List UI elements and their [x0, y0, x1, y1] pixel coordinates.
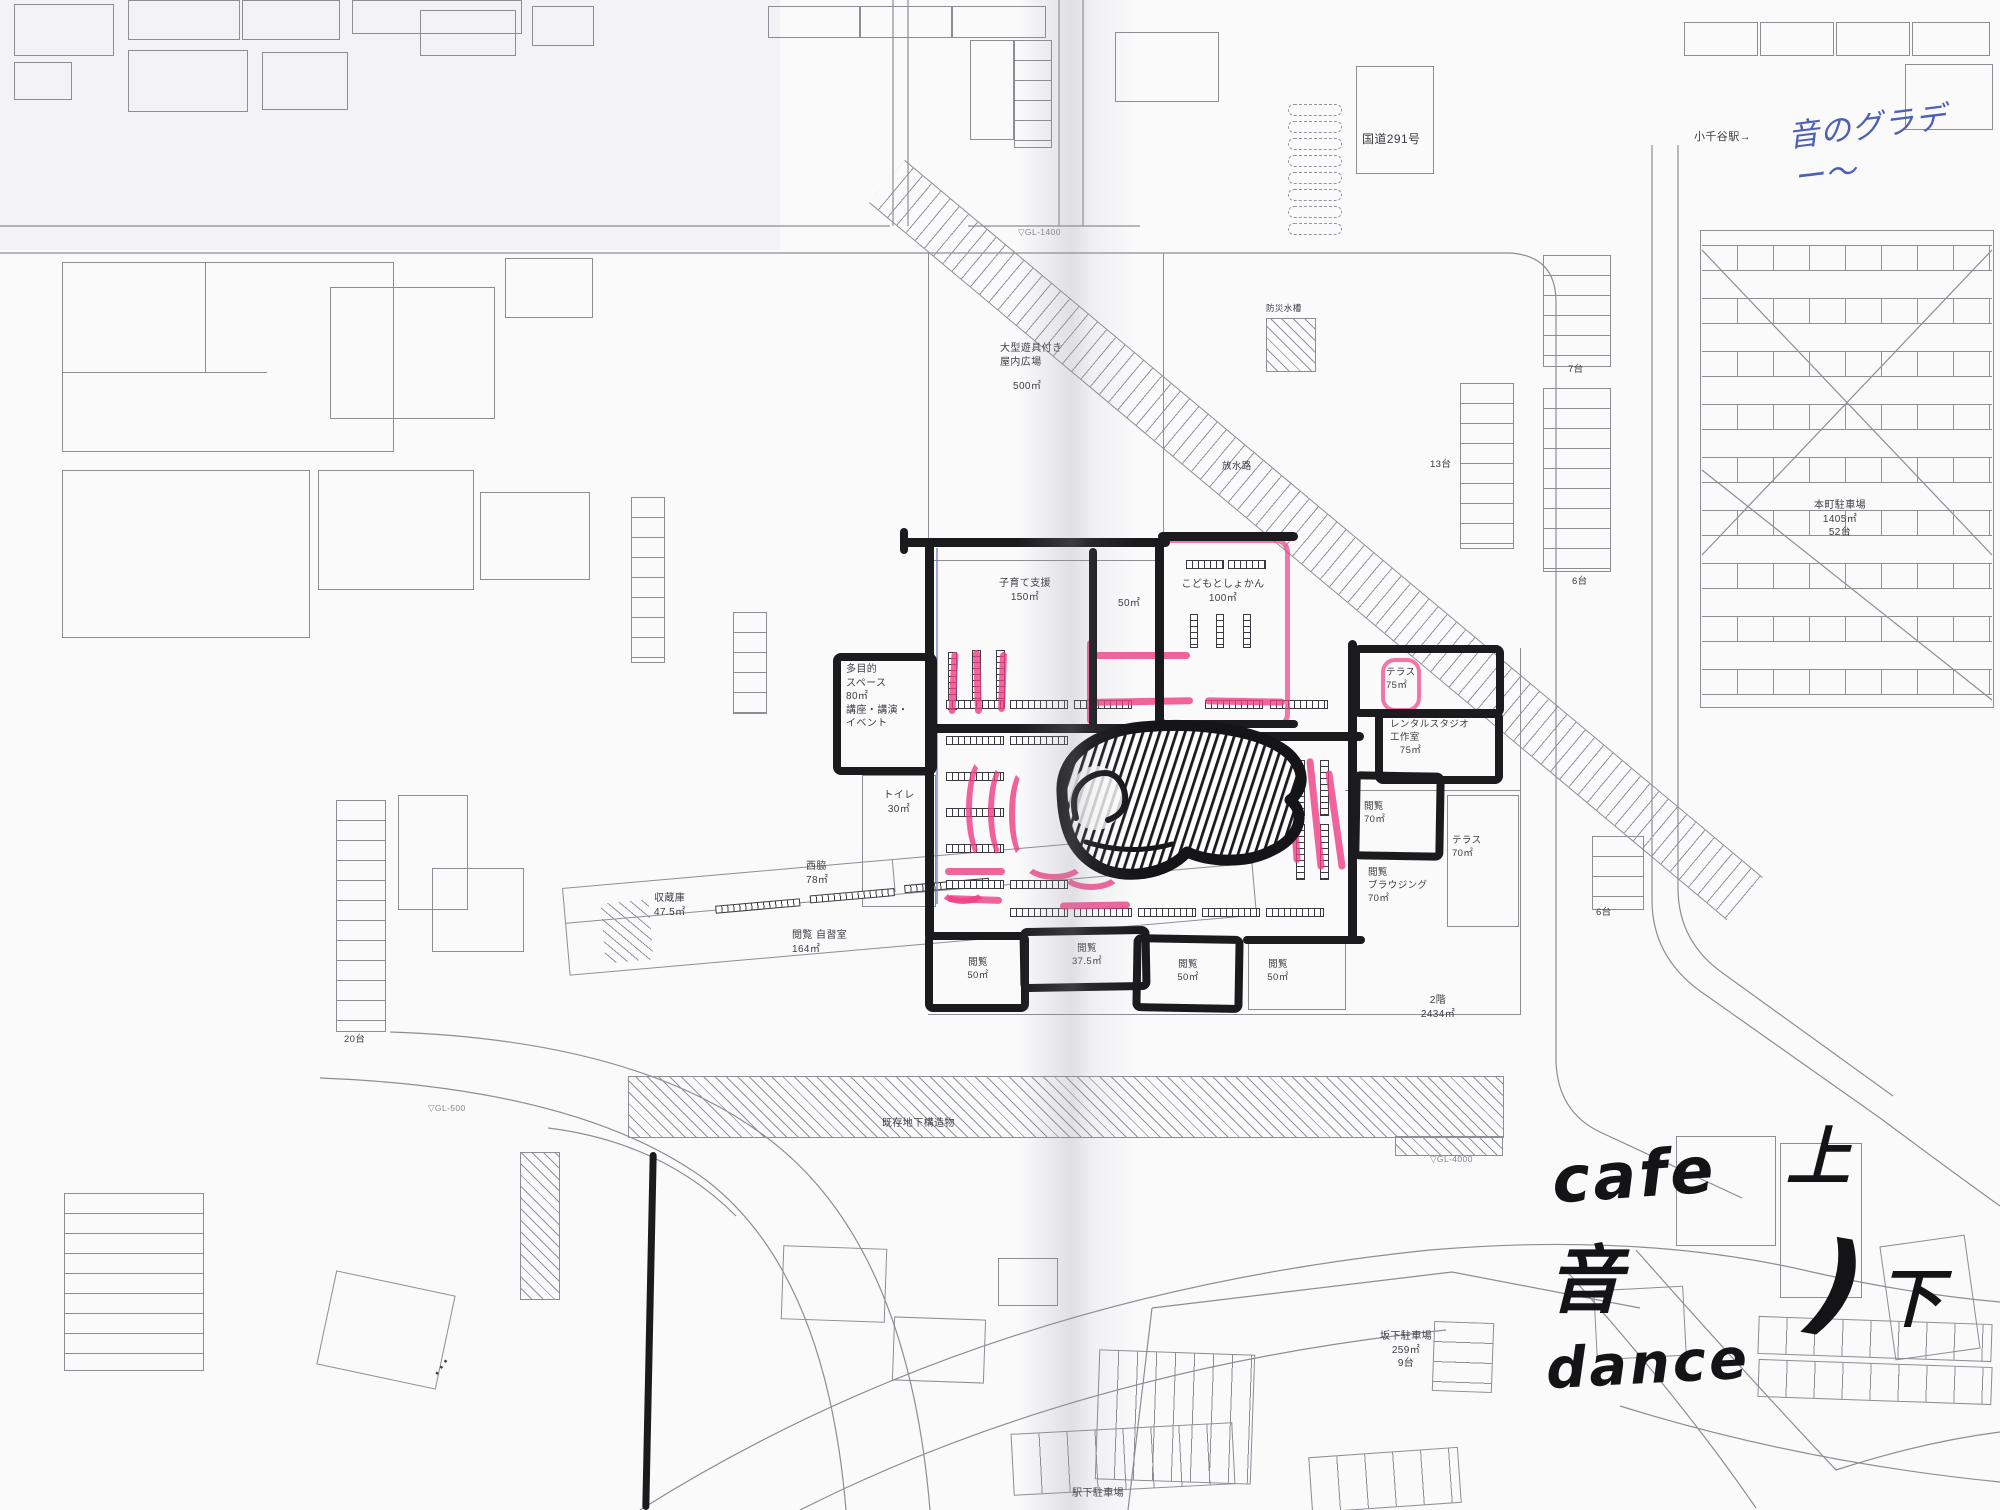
scribble-blob — [0, 0, 2000, 1510]
scanned-site-plan: 国道291号小千谷駅→音のグラデー〜▽GL-1400防災水槽大型遊具付き 屋内広… — [0, 0, 2000, 1510]
